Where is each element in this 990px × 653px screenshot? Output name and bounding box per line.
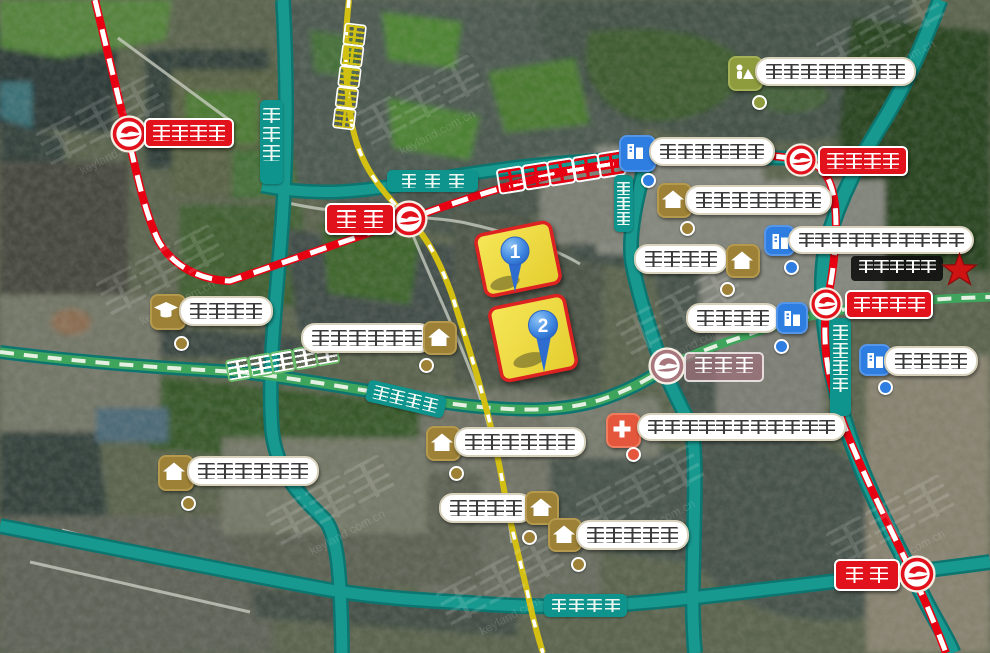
svg-text:1: 1 bbox=[510, 242, 521, 263]
svg-text:2: 2 bbox=[538, 316, 549, 337]
